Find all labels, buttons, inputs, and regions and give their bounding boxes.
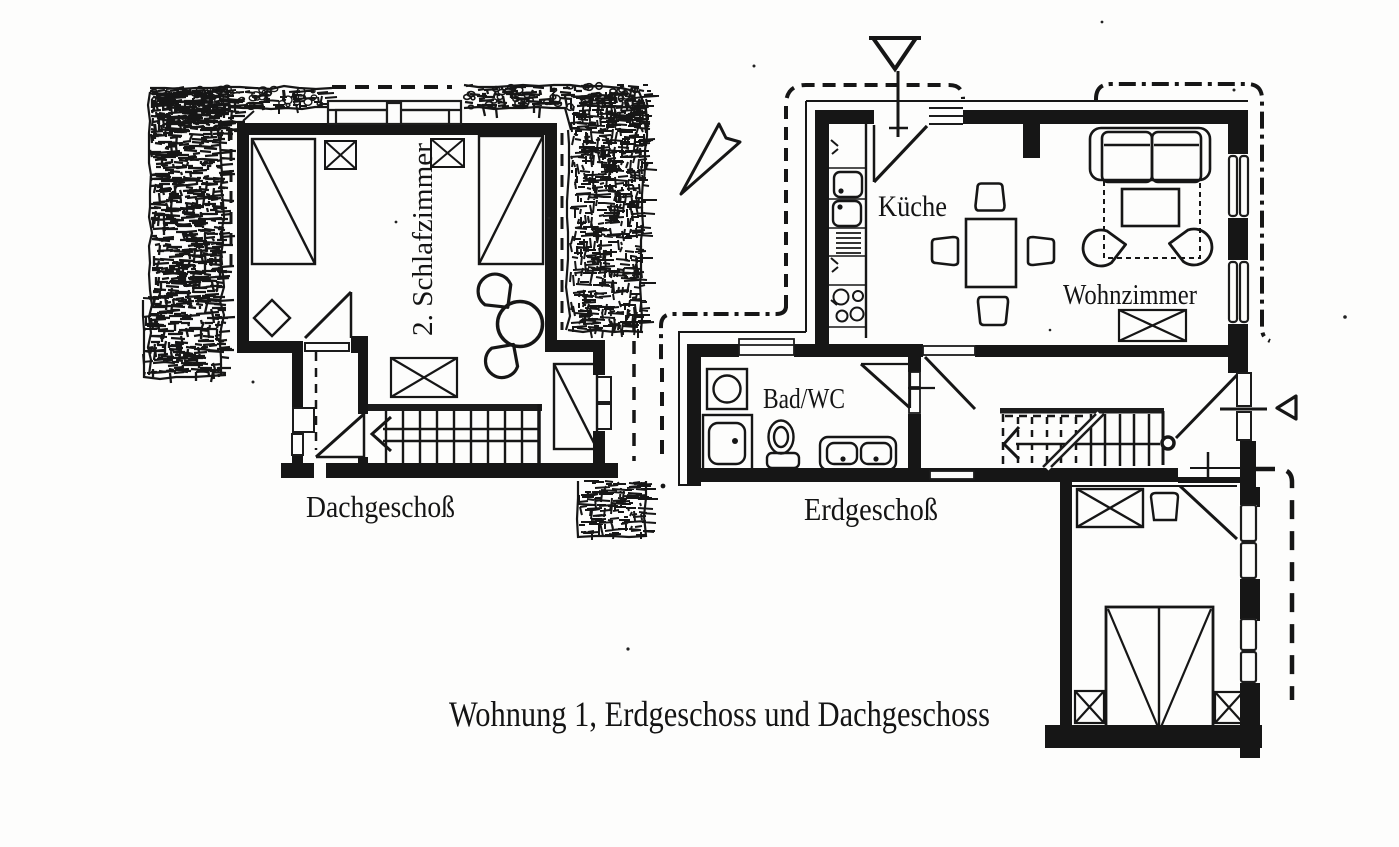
svg-text:Erdgeschoß: Erdgeschoß xyxy=(804,491,938,527)
svg-text:Wohnzimmer: Wohnzimmer xyxy=(1063,280,1198,311)
svg-text:2. Schlafzimmer: 2. Schlafzimmer xyxy=(407,143,439,336)
svg-text:Bad/WC: Bad/WC xyxy=(763,384,845,415)
svg-text:Wohnung 1, Erdgeschoss und Dac: Wohnung 1, Erdgeschoss und Dachgeschoss xyxy=(449,694,990,734)
svg-text:Küche: Küche xyxy=(878,190,947,223)
svg-text:Dachgeschoß: Dachgeschoß xyxy=(306,489,455,524)
